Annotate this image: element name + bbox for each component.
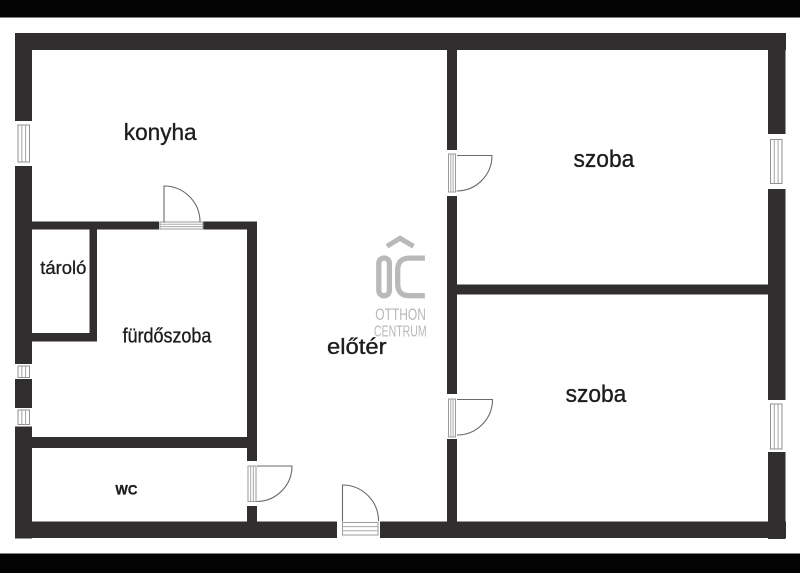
svg-text:fürdőszoba: fürdőszoba [123, 326, 212, 348]
svg-text:WC: WC [115, 482, 137, 498]
svg-text:szoba: szoba [574, 146, 635, 173]
svg-text:OTTHON: OTTHON [375, 306, 426, 324]
svg-text:tároló: tároló [40, 257, 86, 278]
svg-text:szoba: szoba [566, 381, 627, 408]
svg-text:konyha: konyha [124, 119, 197, 145]
svg-text:előtér: előtér [327, 334, 387, 359]
